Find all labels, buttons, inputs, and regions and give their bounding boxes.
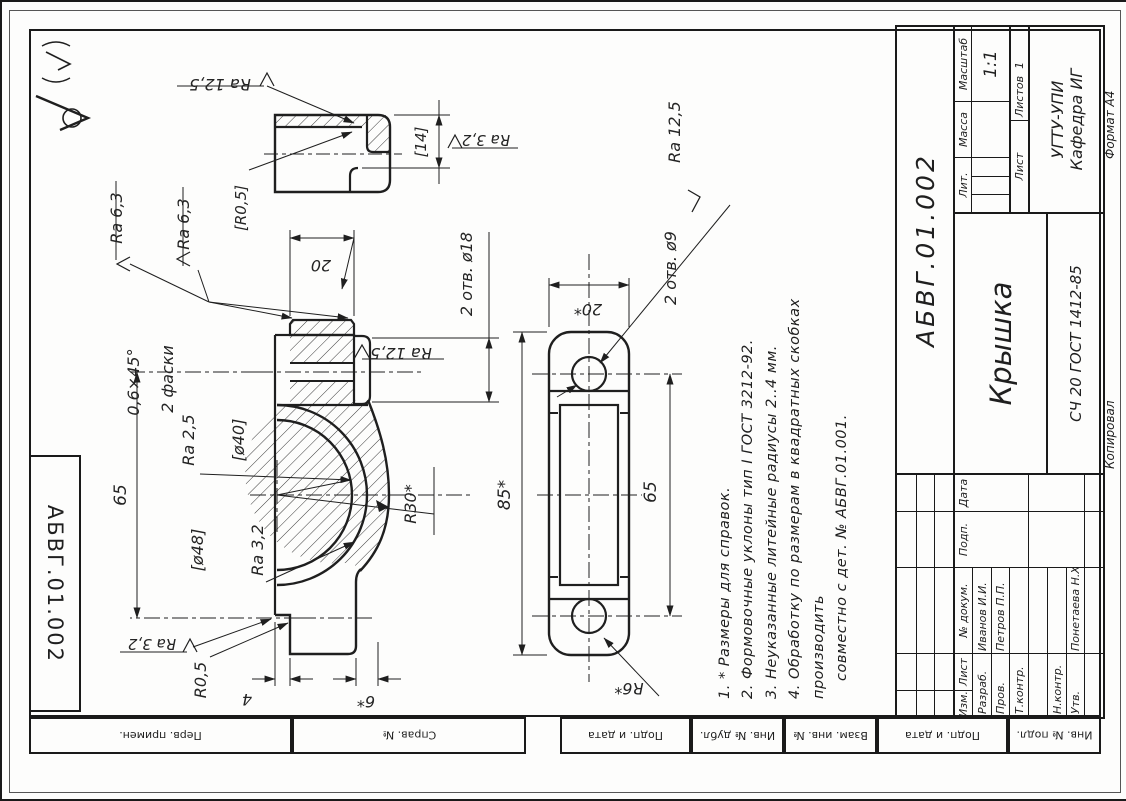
dim20s-label: 20* [574,300,602,319]
dim14-label: [14] [412,126,430,157]
chamfer-label: 0,6×45° [124,348,143,415]
ra63-label-1: Ra 6,3 [107,192,126,243]
ra32-bottom-label: Ra 3,2 [128,635,176,653]
d40-label: [ø40] [229,419,248,462]
detail-view-labels: Ra 12,5 [R0,5] [14] Ra 3,2 [189,75,510,231]
r6-label: R6* [614,679,643,698]
chamfer2-label: 2 фаски [158,345,177,413]
ra63-label-2: Ra 6,3 [174,198,193,249]
dim65-main-label: 65 [111,484,131,506]
dim85-label: 85* [495,480,515,510]
r30-label: R30* [401,484,420,523]
dim4-label: 4 [242,690,252,709]
ra125-plan-label: Ra 12,5 [665,101,684,163]
drawing-views: Ra 12,5 [R0,5] [14] Ra 3,2 [2,2,1126,799]
r05-bracket-label: [R0,5] [232,185,250,231]
plan-view [513,190,730,696]
ra25-label: Ra 2,5 [179,414,198,465]
main-section-view [116,181,499,686]
drawing-sheet: АБВГ.01.002 Перв. примен. Справ. № Подп.… [0,0,1126,801]
dim20-label: 20 [311,256,331,275]
ra32-label: Ra 3,2 [462,131,510,149]
otv18-label: 2 отв. ø18 [457,232,476,316]
ra125-mid-label: Ra 12,5 [370,344,432,363]
otv9-label: 2 отв. ø9 [661,231,680,305]
d48-label: [ø48] [188,529,207,572]
ra125-label: Ra 12,5 [189,75,251,94]
dim65-plan-label: 65 [641,481,661,503]
ra32-main-label: Ra 3,2 [248,524,267,575]
general-roughness-symbol [36,42,88,130]
r05-label: R0,5 [191,662,210,699]
dim6-label: 6* [357,692,375,711]
